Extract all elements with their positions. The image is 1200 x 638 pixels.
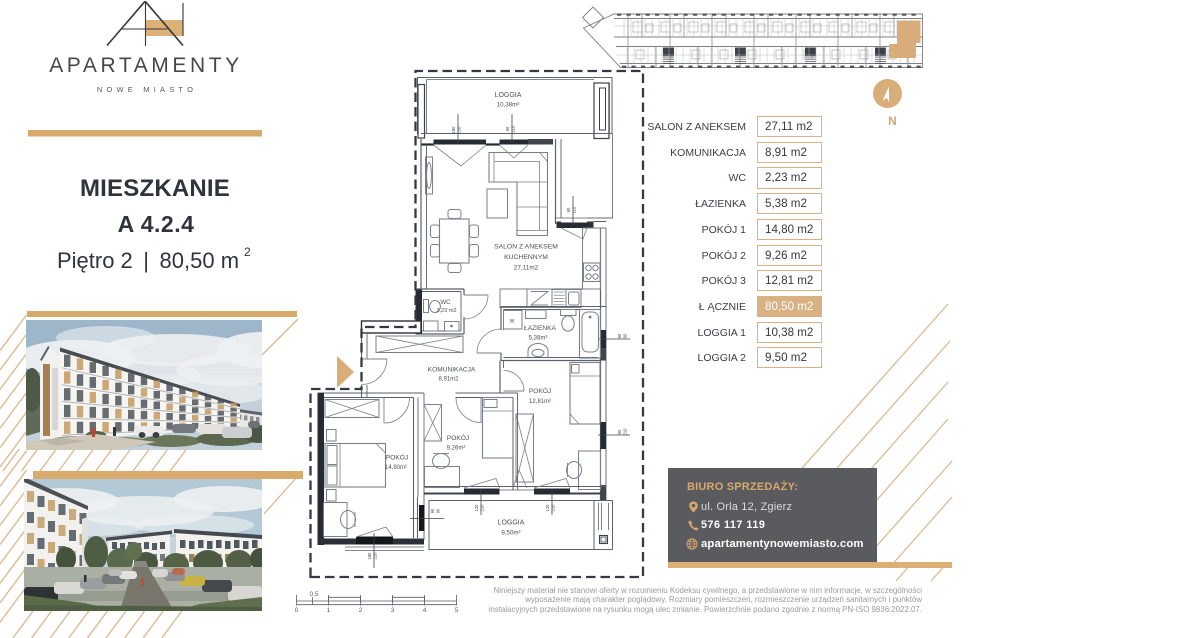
svg-text:POKÓJ: POKÓJ: [386, 453, 408, 462]
svg-text:Piętro 2 | 80,50 m: Piętro 2 | 80,50 m: [57, 248, 239, 273]
svg-text:NOWE MIASTO: NOWE MIASTO: [97, 85, 197, 94]
svg-text:10,38m²: 10,38m²: [497, 102, 520, 109]
svg-text:14,80m²: 14,80m²: [385, 465, 407, 471]
svg-text:WC: WC: [440, 299, 451, 306]
svg-text:2,23 m2: 2,23 m2: [436, 308, 456, 314]
svg-text:N: N: [888, 114, 897, 128]
svg-text:w: w: [509, 318, 515, 325]
svg-text:5,38m²: 5,38m²: [529, 336, 548, 342]
svg-text:KUCHENNYM: KUCHENNYM: [504, 254, 548, 261]
svg-text:4: 4: [423, 607, 427, 614]
svg-text:90: 90: [505, 126, 510, 131]
svg-text:120: 120: [545, 504, 550, 512]
svg-text:210: 210: [623, 428, 628, 436]
svg-text:APARTAMENTY: APARTAMENTY: [49, 54, 243, 77]
svg-text:120: 120: [474, 504, 479, 512]
svg-text:27,11m2: 27,11m2: [514, 265, 539, 272]
svg-text:MIESZKANIE: MIESZKANIE: [80, 175, 230, 202]
svg-text:9,26m²: 9,26m²: [447, 446, 466, 452]
svg-text:A 4.2.4: A 4.2.4: [118, 211, 195, 237]
svg-text:2: 2: [359, 607, 363, 614]
svg-text:0,5: 0,5: [309, 591, 318, 598]
svg-text:110: 110: [511, 125, 516, 132]
svg-text:8,91m2: 8,91m2: [438, 377, 459, 383]
svg-text:ŁAZIENKA: ŁAZIENKA: [524, 325, 556, 332]
svg-text:3: 3: [391, 607, 395, 614]
svg-text:POKÓJ: POKÓJ: [447, 433, 469, 442]
svg-text:90: 90: [566, 207, 571, 212]
svg-text:KOMUNIKACJA: KOMUNIKACJA: [428, 367, 476, 374]
svg-text:2: 2: [244, 245, 251, 259]
svg-text:90: 90: [430, 508, 435, 513]
svg-text:210: 210: [551, 504, 556, 512]
svg-text:1: 1: [327, 607, 331, 614]
svg-text:180: 180: [367, 552, 372, 560]
svg-text:POKÓJ: POKÓJ: [529, 386, 551, 395]
svg-text:9,50m²: 9,50m²: [501, 530, 520, 537]
svg-text:180: 180: [451, 126, 456, 134]
svg-text:SALON Z ANEKSEM: SALON Z ANEKSEM: [494, 244, 558, 251]
svg-text:110: 110: [572, 206, 577, 213]
svg-text:210: 210: [480, 504, 485, 512]
svg-text:12,81m²: 12,81m²: [529, 399, 551, 405]
svg-text:5: 5: [455, 607, 459, 614]
svg-text:90: 90: [617, 429, 622, 434]
svg-text:LOGGIA: LOGGIA: [498, 520, 525, 527]
svg-text:0: 0: [295, 607, 299, 614]
svg-text:90: 90: [436, 508, 441, 513]
svg-text:210: 210: [457, 126, 462, 134]
svg-text:LOGGIA: LOGGIA: [495, 92, 522, 99]
svg-text:210: 210: [373, 552, 378, 560]
